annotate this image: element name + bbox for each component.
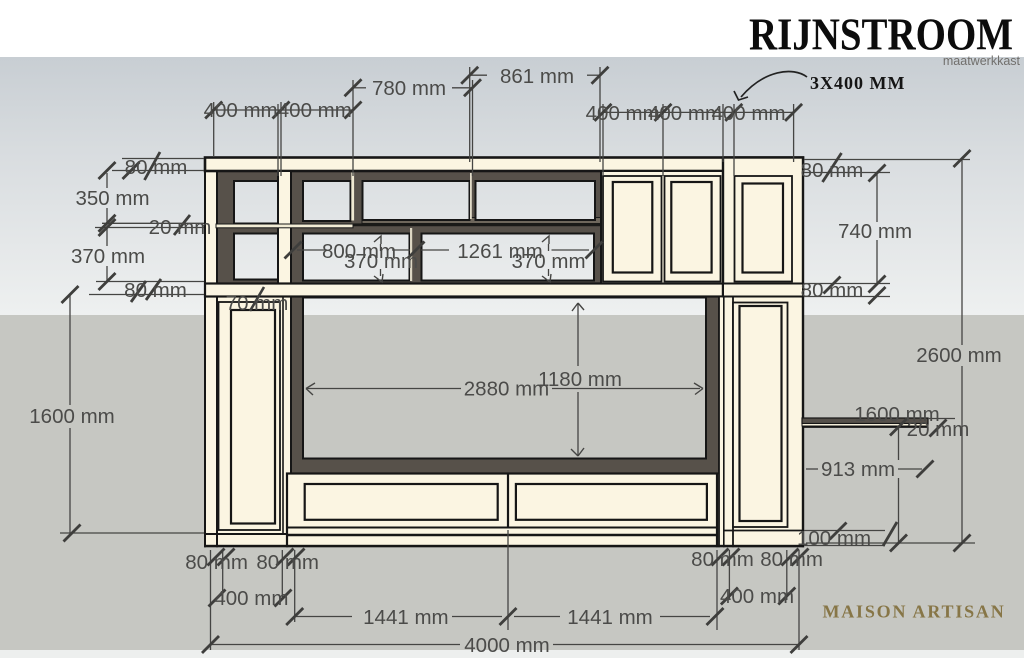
svg-text:70 mm: 70 mm — [226, 292, 289, 315]
svg-text:maatwerkkast: maatwerkkast — [943, 54, 1021, 68]
svg-text:350 mm: 350 mm — [75, 187, 149, 210]
svg-text:RIJNSTROOM: RIJNSTROOM — [749, 10, 1013, 60]
svg-text:2600 mm: 2600 mm — [916, 344, 1001, 367]
svg-text:2880 mm: 2880 mm — [464, 378, 549, 401]
svg-text:100 mm: 100 mm — [797, 527, 871, 550]
svg-text:20 mm: 20 mm — [149, 216, 212, 239]
svg-text:861 mm: 861 mm — [500, 65, 574, 88]
svg-text:80 mm: 80 mm — [125, 156, 188, 179]
svg-text:80 mm: 80 mm — [760, 548, 823, 571]
svg-text:913 mm: 913 mm — [821, 458, 895, 481]
svg-text:400 mm: 400 mm — [278, 99, 352, 122]
svg-text:MAISON ARTISAN: MAISON ARTISAN — [822, 602, 1005, 622]
svg-text:400 mm: 400 mm — [214, 587, 288, 610]
svg-text:1441 mm: 1441 mm — [363, 606, 448, 629]
svg-text:20 mm: 20 mm — [907, 418, 970, 441]
svg-text:3X400 MM: 3X400 MM — [810, 73, 905, 93]
svg-text:4000 mm: 4000 mm — [464, 634, 549, 657]
svg-text:740 mm: 740 mm — [838, 220, 912, 243]
svg-text:370 mm: 370 mm — [344, 250, 418, 273]
svg-text:400 mm: 400 mm — [711, 102, 785, 125]
svg-text:400 mm: 400 mm — [204, 99, 278, 122]
svg-text:400 mm: 400 mm — [720, 585, 794, 608]
svg-text:1600 mm: 1600 mm — [29, 405, 114, 428]
svg-text:80 mm: 80 mm — [124, 279, 187, 302]
svg-text:80 mm: 80 mm — [256, 551, 319, 574]
svg-text:80 mm: 80 mm — [185, 551, 248, 574]
svg-text:1441 mm: 1441 mm — [567, 606, 652, 629]
svg-text:80 mm: 80 mm — [691, 548, 754, 571]
svg-text:780 mm: 780 mm — [372, 77, 446, 100]
svg-text:1180 mm: 1180 mm — [538, 368, 622, 391]
svg-text:370 mm: 370 mm — [511, 250, 585, 273]
svg-text:370 mm: 370 mm — [71, 245, 145, 268]
svg-text:80 mm: 80 mm — [801, 279, 864, 302]
svg-text:80 mm: 80 mm — [801, 159, 864, 182]
